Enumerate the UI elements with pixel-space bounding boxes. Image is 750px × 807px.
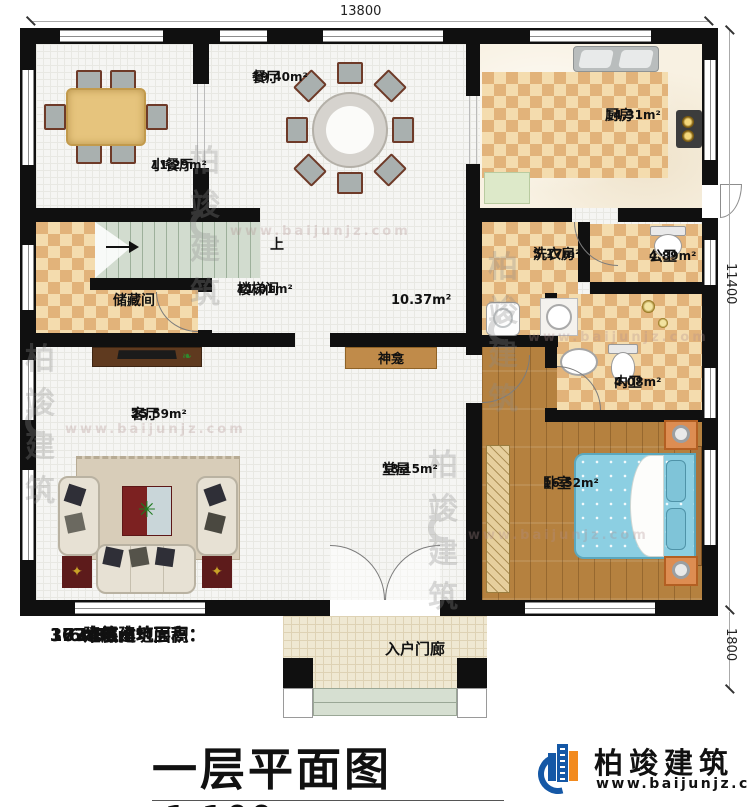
- entry-door-gap: [330, 600, 440, 616]
- brand-logo-icon: [540, 744, 586, 796]
- brand-bar-blue-small: [548, 753, 556, 781]
- nightstand-lamp: [672, 425, 690, 443]
- stove-burner: [682, 116, 694, 128]
- window: [75, 602, 205, 614]
- wall-storage-right-a: [198, 278, 212, 292]
- window: [220, 30, 267, 42]
- bed-blanket: [630, 455, 664, 557]
- window: [525, 602, 655, 614]
- wall-dining-divider-top: [193, 44, 209, 84]
- window: [704, 240, 716, 285]
- dimension-line-right: [729, 30, 730, 610]
- sofa-pillow: [102, 546, 123, 567]
- chair: [44, 104, 66, 130]
- dimension-tick: [725, 25, 735, 35]
- washing-machine-door: [493, 308, 513, 328]
- wall-kitchen-south-b: [618, 208, 702, 222]
- plan-title-block: 一层平面图 1:100: [152, 733, 504, 807]
- wall-below-small-dining: [20, 208, 260, 222]
- kitchen-mat: [484, 172, 530, 204]
- end-table: ✦: [62, 556, 92, 588]
- kitchen-sink-basin: [578, 50, 614, 68]
- brand-logo: 柏竣建筑 www.baijunjz.com: [540, 740, 740, 800]
- wall-kitchen-south-a: [480, 208, 572, 222]
- stairs-arrow-head: [129, 241, 139, 253]
- sofa-pillow: [64, 512, 85, 533]
- tv-plant: ❧: [182, 350, 194, 362]
- kitchen-exterior-door-leaf: [720, 184, 742, 218]
- wall-living-top: [20, 333, 295, 347]
- brand-bar-blue: [557, 744, 568, 782]
- sofa-pillow: [155, 547, 175, 567]
- dimension-tick: [725, 684, 735, 694]
- shrine-console: 神龛: [345, 347, 437, 369]
- shower-fixture: [658, 318, 668, 328]
- dining-cased-opening: [197, 84, 205, 168]
- tv: [117, 350, 177, 359]
- dimension-depth-main: 11400: [723, 263, 738, 304]
- chair: [337, 62, 363, 84]
- window: [323, 30, 443, 42]
- brand-bar-orange: [569, 751, 578, 781]
- window: [22, 70, 34, 165]
- porch-column-base: [457, 688, 487, 718]
- round-dining-table-top: [326, 106, 374, 154]
- window: [704, 368, 716, 418]
- laundry-sink: [546, 304, 572, 330]
- wall-public-bath-south: [590, 282, 702, 294]
- shower-fixture: [642, 300, 655, 313]
- shrine-label: 神龛: [378, 352, 404, 367]
- stairs-arrow-line: [106, 246, 130, 248]
- wall-kitchen-west-top: [466, 44, 480, 96]
- window: [60, 30, 163, 42]
- wardrobe: [486, 445, 510, 593]
- wall-hall-east-b: [466, 403, 482, 600]
- kitchen-cased-opening: [469, 96, 477, 164]
- bed-pillow: [666, 460, 686, 502]
- porch-column: [283, 658, 313, 688]
- dimension-tick: [725, 605, 735, 615]
- kitchen-exterior-door-gap: [702, 185, 718, 218]
- porch-column-base: [283, 688, 313, 718]
- window: [704, 450, 716, 545]
- window: [22, 360, 34, 420]
- stove-burner: [682, 130, 694, 142]
- chair: [146, 104, 168, 130]
- wall-shrine: [330, 333, 470, 347]
- dimension-line-top: [30, 21, 710, 22]
- small-dining-table: [66, 88, 146, 146]
- wall-below-stairs: [90, 278, 200, 290]
- porch-column: [457, 658, 487, 688]
- wall-kitchen-west-bottom: [466, 164, 480, 222]
- kitchen-rug: [482, 72, 668, 178]
- window: [22, 245, 34, 310]
- dimension-porch-depth: 1800: [723, 628, 738, 661]
- dimension-width-total: 13800: [340, 4, 381, 19]
- chair: [392, 117, 414, 143]
- sofa-pillow: [129, 547, 150, 568]
- chair: [286, 117, 308, 143]
- window: [704, 60, 716, 160]
- end-table: ✦: [202, 556, 232, 588]
- coffee-table-plant: ✳: [136, 500, 158, 522]
- bed-pillow: [666, 508, 686, 550]
- nightstand-lamp: [672, 561, 690, 579]
- porch-steps: [313, 688, 457, 716]
- floor-plan-page: 上 ✳: [0, 0, 750, 807]
- plan-title-underline-2: [152, 800, 504, 801]
- brand-url: www.baijunjz.com: [596, 776, 750, 792]
- window: [530, 30, 651, 42]
- plan-title: 一层平面图: [152, 743, 392, 796]
- kitchen-sink-basin: [618, 50, 654, 68]
- window: [22, 470, 34, 560]
- chair: [337, 172, 363, 194]
